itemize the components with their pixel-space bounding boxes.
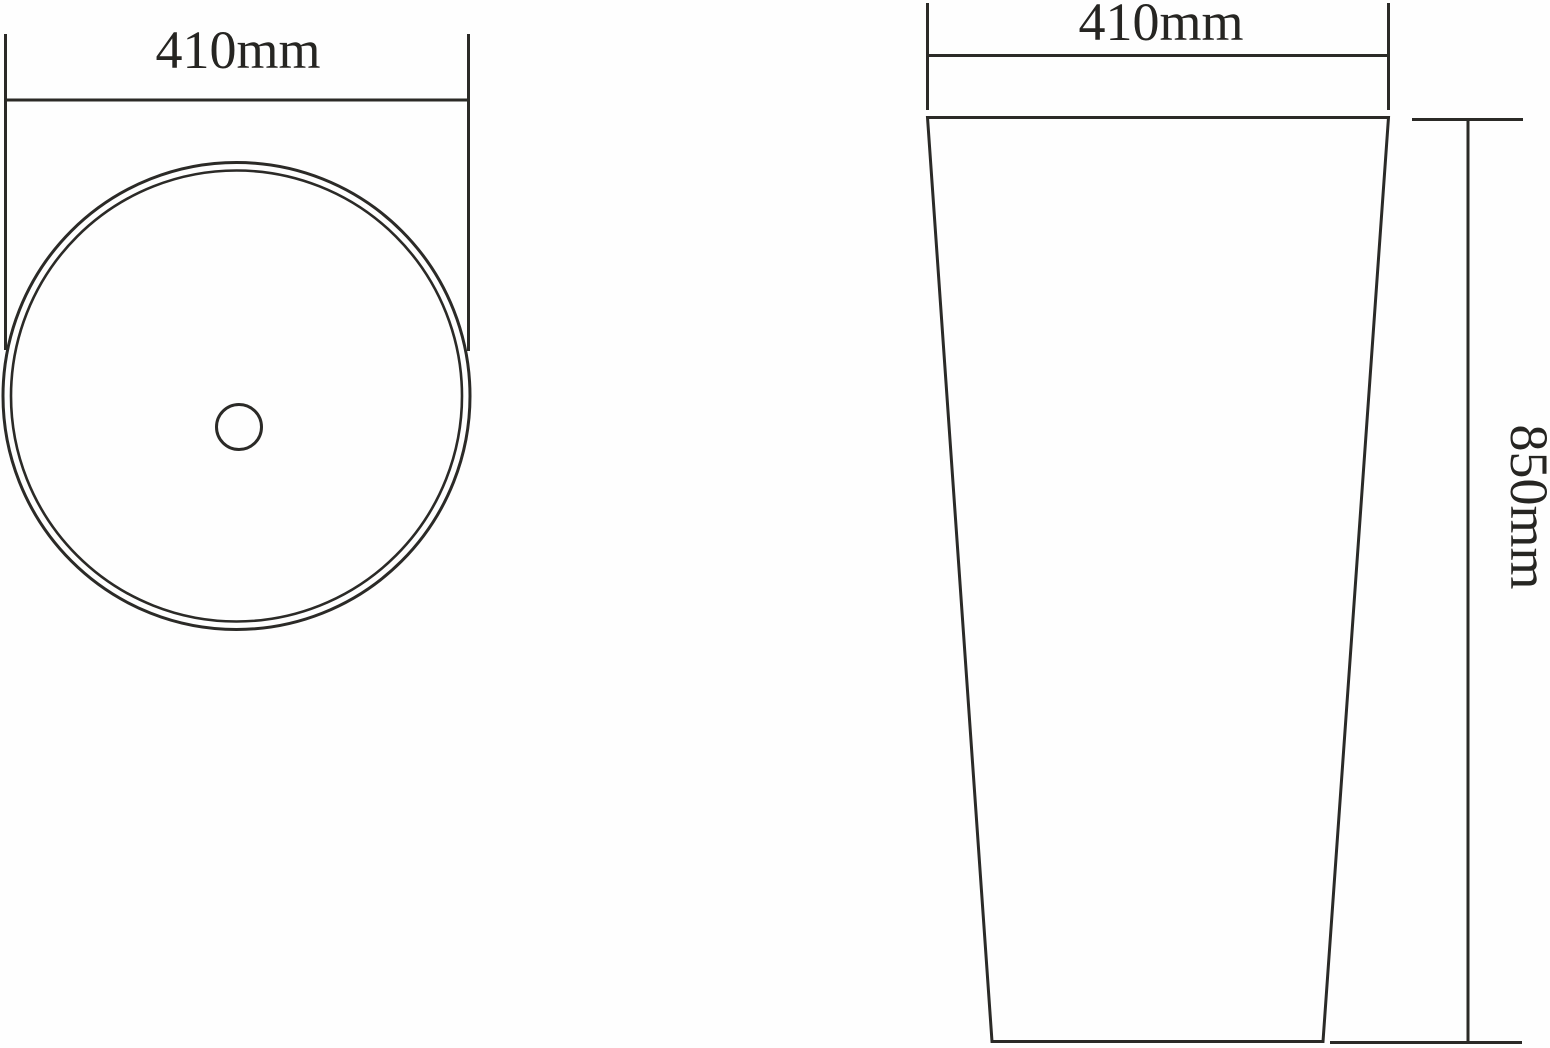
plan-view: 410mm [3,20,470,630]
basin-body-outline [928,118,1389,1042]
basin-inner-rim-circle [11,171,462,622]
front-height-label: 850mm [1499,424,1550,589]
front-width-label: 410mm [1078,0,1243,52]
pedestal-basin-dimension-drawing: 410mm 410mm 850mm [0,0,1550,1048]
plan-width-label: 410mm [155,20,320,80]
front-view: 410mm 850mm [928,0,1550,1043]
technical-drawing-canvas: 410mm 410mm 850mm [0,0,1550,1048]
basin-outer-rim-circle [3,163,470,630]
drain-hole-circle [217,405,262,450]
